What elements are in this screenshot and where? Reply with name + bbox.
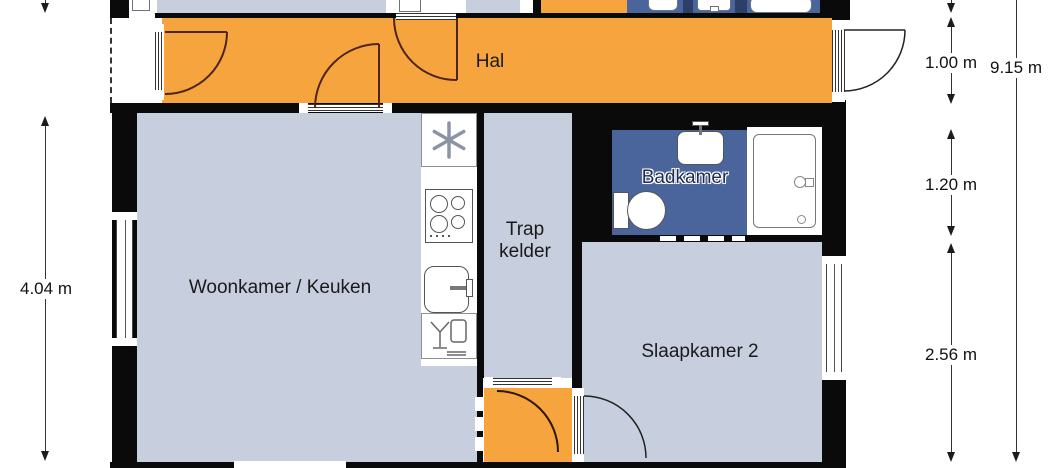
living-room-label: Woonkamer / Keuken xyxy=(189,277,371,299)
bedroom-label: Slaapkamer 2 xyxy=(641,341,758,363)
bathroom-depth-dimension: 1.20 m xyxy=(922,175,980,195)
wall-dash xyxy=(684,236,700,241)
hall-label: Hal xyxy=(476,51,505,73)
stair-closet-label: Trap kelder xyxy=(480,219,570,263)
wall-dash xyxy=(708,236,724,241)
boiler-icon xyxy=(132,0,150,11)
dimension-arrow xyxy=(947,129,955,139)
bathroom-divider-wall xyxy=(683,0,693,13)
door-post xyxy=(552,377,561,388)
window-cap xyxy=(112,212,137,220)
toilet-bowl-icon xyxy=(627,191,666,230)
door-post xyxy=(572,388,584,396)
hall-depth-dimension: 1.00 m xyxy=(922,53,980,73)
dimension-arrow xyxy=(41,116,49,126)
wall-corner-right xyxy=(820,0,850,20)
upper-hall-strip xyxy=(541,0,627,13)
door-post xyxy=(572,454,584,462)
shower-drain-icon xyxy=(797,215,806,224)
burner-icon xyxy=(451,196,465,210)
living-room-window xyxy=(116,220,133,338)
wall-dash xyxy=(475,397,483,411)
window-cap xyxy=(112,338,137,346)
burner-icon xyxy=(430,215,448,233)
dish-rack-cell xyxy=(421,313,477,359)
stair-landing-threshold xyxy=(493,378,552,387)
upper-room-strip-left xyxy=(157,0,386,13)
wall-dash xyxy=(660,236,676,241)
dimension-arrow xyxy=(41,451,49,461)
door-post xyxy=(484,377,493,388)
burner-icon xyxy=(451,215,465,229)
cooktop-knob xyxy=(436,235,438,237)
dimension-arrow xyxy=(41,3,49,13)
toilet-icon xyxy=(648,0,678,11)
front-door-swing xyxy=(844,30,905,91)
upper-room-strip-right xyxy=(466,0,520,13)
washbasin-tap-icon xyxy=(710,6,719,12)
dimension-arrow xyxy=(947,17,955,27)
wall-dash xyxy=(475,417,483,431)
cooktop-knob xyxy=(448,235,450,237)
living-height-dimension: 4.04 m xyxy=(17,279,75,299)
bathtub-icon xyxy=(750,0,812,13)
kitchen-faucet-handle-icon xyxy=(466,279,473,297)
washbasin-icon xyxy=(677,131,724,165)
window-cap xyxy=(822,372,846,380)
upper-door-threshold xyxy=(396,13,456,20)
dimension-arrow xyxy=(947,452,955,462)
shower-handle-bar-icon xyxy=(805,178,814,187)
total-height-dimension: 9.15 m xyxy=(987,58,1045,78)
bathroom-left-block xyxy=(582,113,612,242)
hall-bottom-wall xyxy=(110,103,846,113)
cooktop-knob xyxy=(442,235,444,237)
window-cap xyxy=(822,256,846,264)
right-exterior-wall-lower xyxy=(822,372,846,468)
bottom-exterior-wall xyxy=(110,462,846,468)
wall-corner xyxy=(110,0,129,18)
floorplan-canvas: Hal Woonkamer / Keuken Trap kelder Badka… xyxy=(0,0,1060,468)
bedroom-depth-dimension: 2.56 m xyxy=(922,345,980,365)
trap-right-wall xyxy=(572,113,582,390)
bedroom-window xyxy=(826,264,842,372)
washbasin-tap-stem-icon xyxy=(699,125,702,135)
hall-living-door-threshold xyxy=(308,104,383,112)
dimension-arrow xyxy=(947,94,955,104)
bathroom-label: Badkamer xyxy=(642,167,729,189)
dimension-arrow xyxy=(947,3,955,13)
living-room-bottom-window xyxy=(234,461,346,468)
hall-window-glazing xyxy=(155,32,164,90)
dimension-arrow xyxy=(947,226,955,236)
door-post xyxy=(383,103,392,113)
bedroom-door-leaf xyxy=(574,396,584,454)
cooktop-knob xyxy=(430,235,432,237)
extractor-hood-cell xyxy=(421,113,477,167)
wall-dash xyxy=(732,236,745,241)
burner-icon xyxy=(430,195,448,213)
dimension-arrow xyxy=(1012,452,1020,462)
bathroom-divider-wall xyxy=(735,0,747,13)
radiator-icon xyxy=(399,0,421,12)
front-door-leaf xyxy=(832,30,845,92)
wall-dash xyxy=(475,437,483,451)
door-post xyxy=(299,103,308,113)
right-exterior-wall-upper xyxy=(822,100,846,264)
dimension-arrow xyxy=(947,243,955,253)
landing-floor xyxy=(484,388,572,462)
